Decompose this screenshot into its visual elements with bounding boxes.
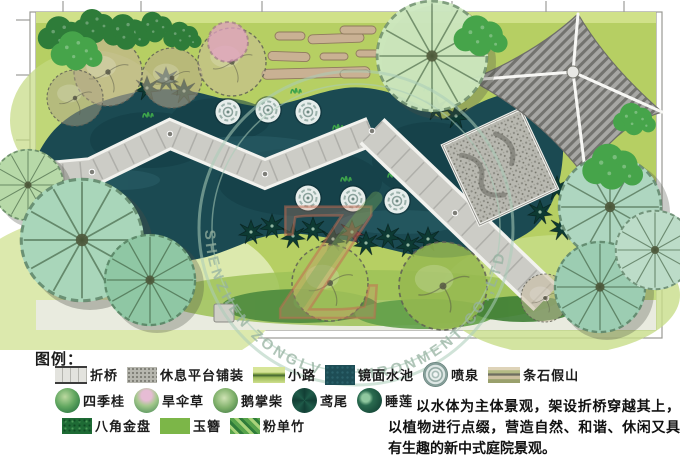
legend-item-hansancao: 旱伞草 xyxy=(134,388,208,413)
swatch-yuzan xyxy=(160,418,190,434)
legend-row-plants-rect: 八角金盘 玉簪 粉单竹 xyxy=(62,416,314,435)
legend-item-fountain: 喷泉 xyxy=(423,362,483,387)
legend-item-yuzan: 玉簪 xyxy=(160,416,225,435)
swatch-stone-rockery xyxy=(488,367,520,383)
legend-item-zigzag-bridge: 折桥 xyxy=(55,365,122,384)
legend-item-rest-platform-paving: 休息平台铺装 xyxy=(127,365,248,384)
legend-item-small-path: 小路 xyxy=(253,365,320,384)
legend-item-mirror-pool: 镜面水池 xyxy=(325,365,418,385)
swatch-mirror-pool xyxy=(325,365,355,385)
swatch-shuilian xyxy=(357,388,382,413)
plan-sheet: Z SHENZHEN ZONGLV ENVIRONMENT CO.,LTD 图例… xyxy=(0,0,680,476)
pink-blossom-tree xyxy=(208,22,248,62)
swatch-fountain xyxy=(423,362,448,387)
legend-item-fendanzhu: 粉单竹 xyxy=(230,416,309,435)
swatch-rest-platform-paving xyxy=(127,367,157,383)
roof-finial xyxy=(567,66,579,78)
plan-drawing xyxy=(0,0,680,350)
legend-row-hardscape: 折桥 休息平台铺装 小路 镜面水池 喷泉 条石假山 xyxy=(55,362,588,387)
swatch-ezhangchai xyxy=(213,388,238,413)
legend-item-ezhangchai: 鹅掌柴 xyxy=(213,388,287,413)
bench xyxy=(214,304,234,322)
legend-item-stone-rockery: 条石假山 xyxy=(488,365,583,384)
legend-item-sijigui: 四季桂 xyxy=(55,388,129,413)
swatch-small-path xyxy=(253,367,285,383)
design-description: 以水体为主体景观，架设折桥穿越其上，以植物进行点缀，营造自然、和谐、休闲又具有生… xyxy=(388,397,680,460)
swatch-sijigui xyxy=(55,388,80,413)
swatch-bajiaojinpan xyxy=(62,418,92,434)
swatch-hansancao xyxy=(134,388,159,413)
legend-row-plants-round: 四季桂 旱伞草 鹅掌柴 鸢尾 睡莲 xyxy=(55,388,422,413)
swatch-yuanwei xyxy=(292,388,317,413)
legend-item-bajiaojinpan: 八角金盘 xyxy=(62,416,155,435)
swatch-fendanzhu xyxy=(230,418,260,434)
legend-item-yuanwei: 鸢尾 xyxy=(292,388,352,413)
swatch-zigzag-bridge xyxy=(55,366,87,384)
